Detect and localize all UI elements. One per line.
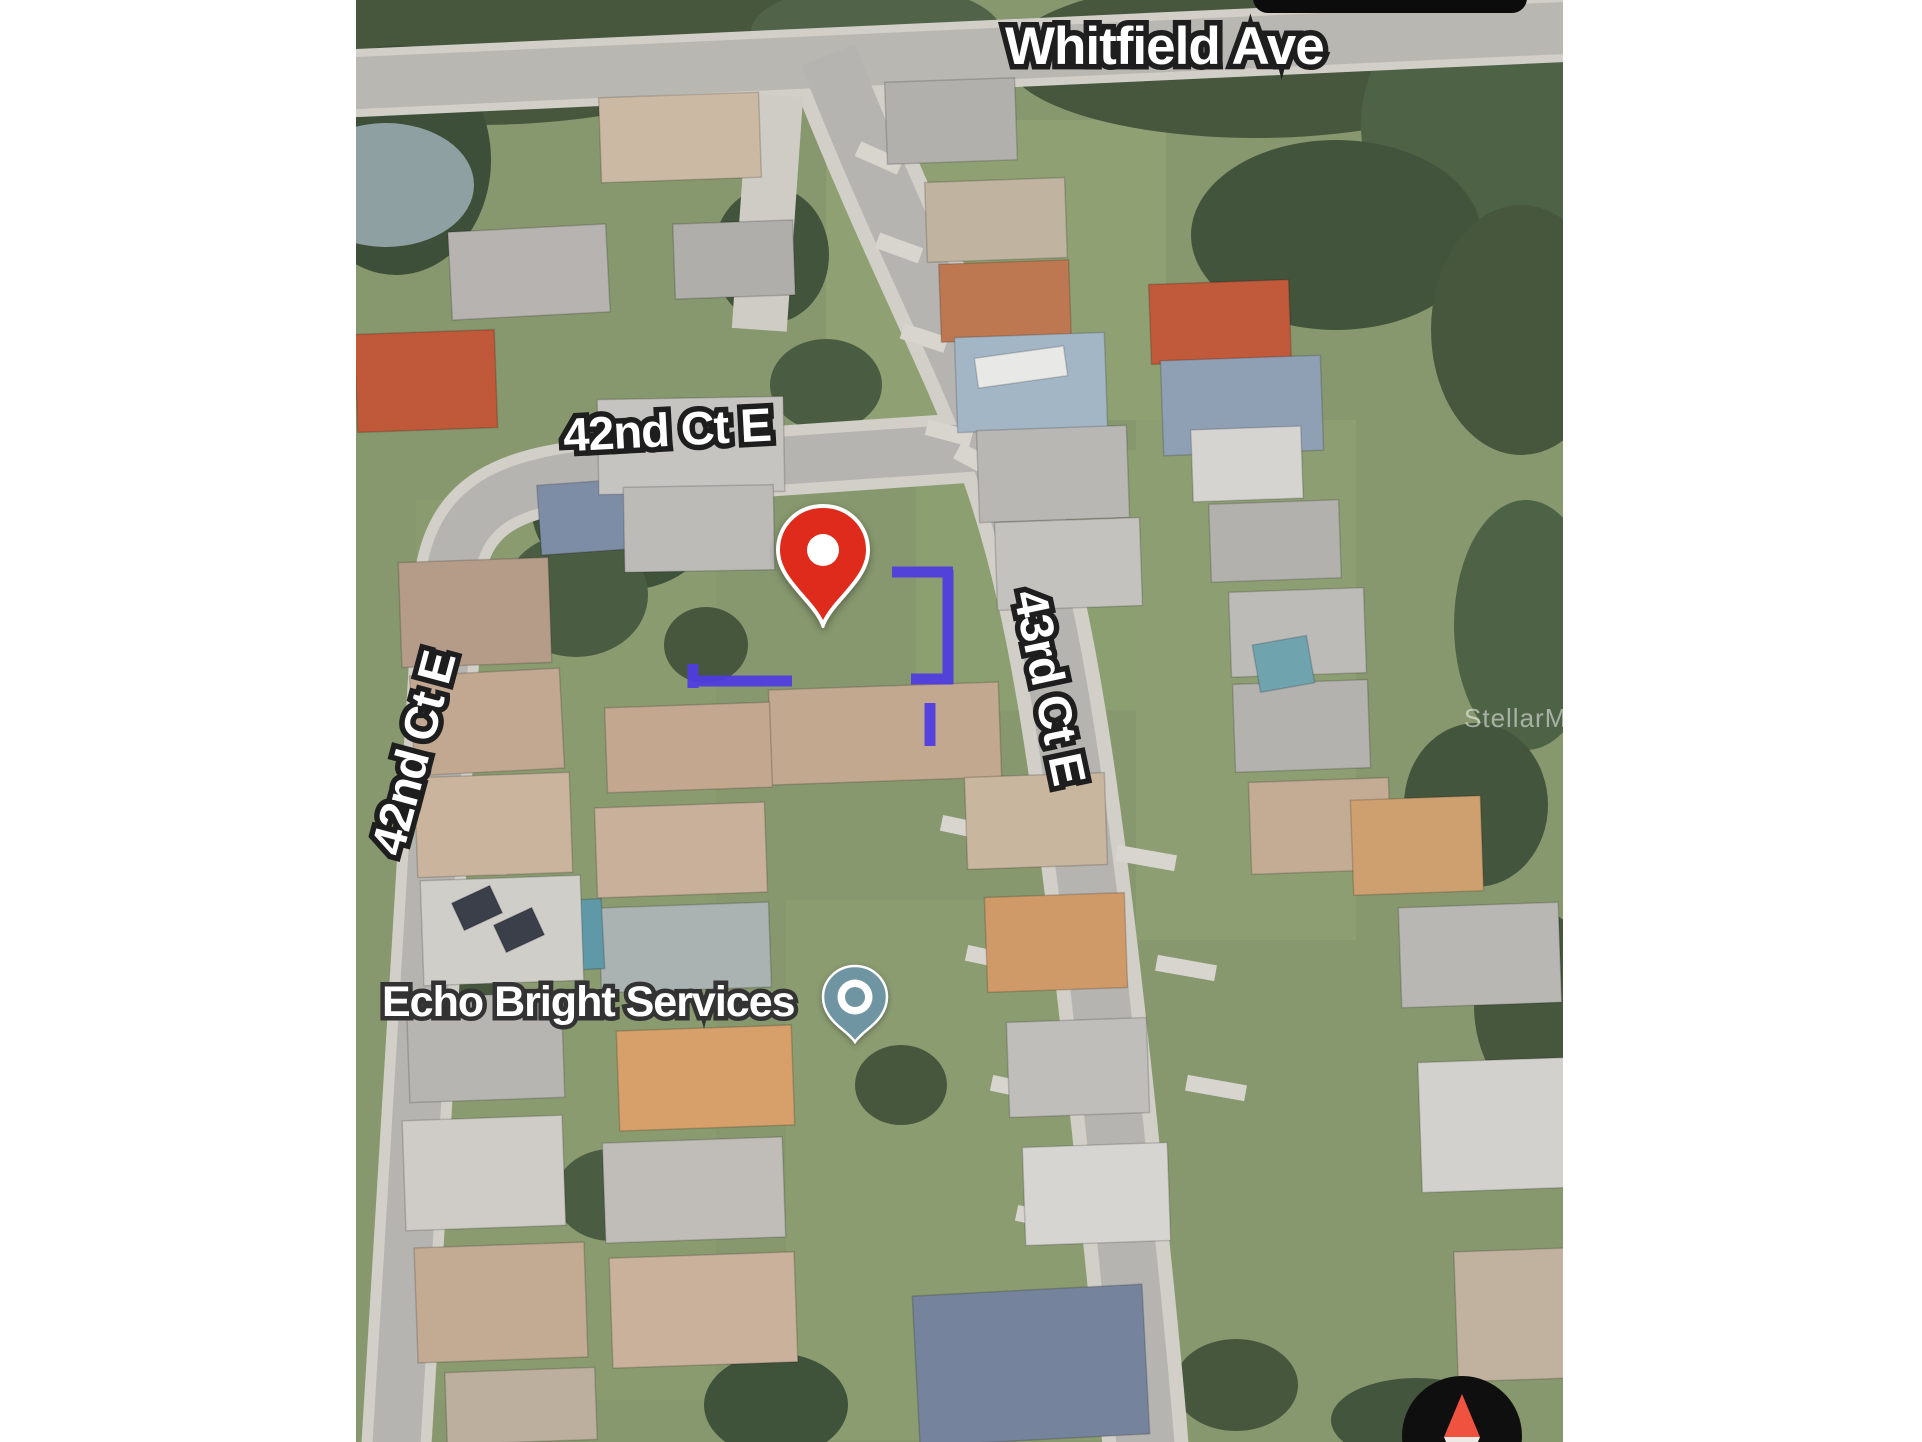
- parcel-boundary-outline: [356, 0, 1563, 1442]
- screenshot-stage: Whitfield Ave Whitfield Ave 42nd Ct E 42…: [0, 0, 1922, 1442]
- property-pin-icon[interactable]: [773, 503, 873, 628]
- poi-marker-icon[interactable]: [820, 964, 890, 1044]
- pin-center-dot: [807, 534, 839, 566]
- stellar-mls-watermark: StellarMLS: [1464, 703, 1563, 734]
- street-label-42nd-ct-e-horizontal: 42nd Ct E 42nd Ct E: [562, 397, 772, 463]
- poi-label-echo-bright-services: Echo Bright Services Echo Bright Service…: [382, 978, 795, 1027]
- street-label-whitfield-ave: Whitfield Ave Whitfield Ave: [1005, 16, 1324, 77]
- compass-needle-south: [1444, 1437, 1480, 1442]
- satellite-map-canvas[interactable]: Whitfield Ave Whitfield Ave 42nd Ct E 42…: [356, 0, 1563, 1442]
- top-edge-pill: [1253, 0, 1527, 13]
- poi-marker-dot: [845, 987, 865, 1007]
- compass-icon[interactable]: [1400, 1374, 1524, 1442]
